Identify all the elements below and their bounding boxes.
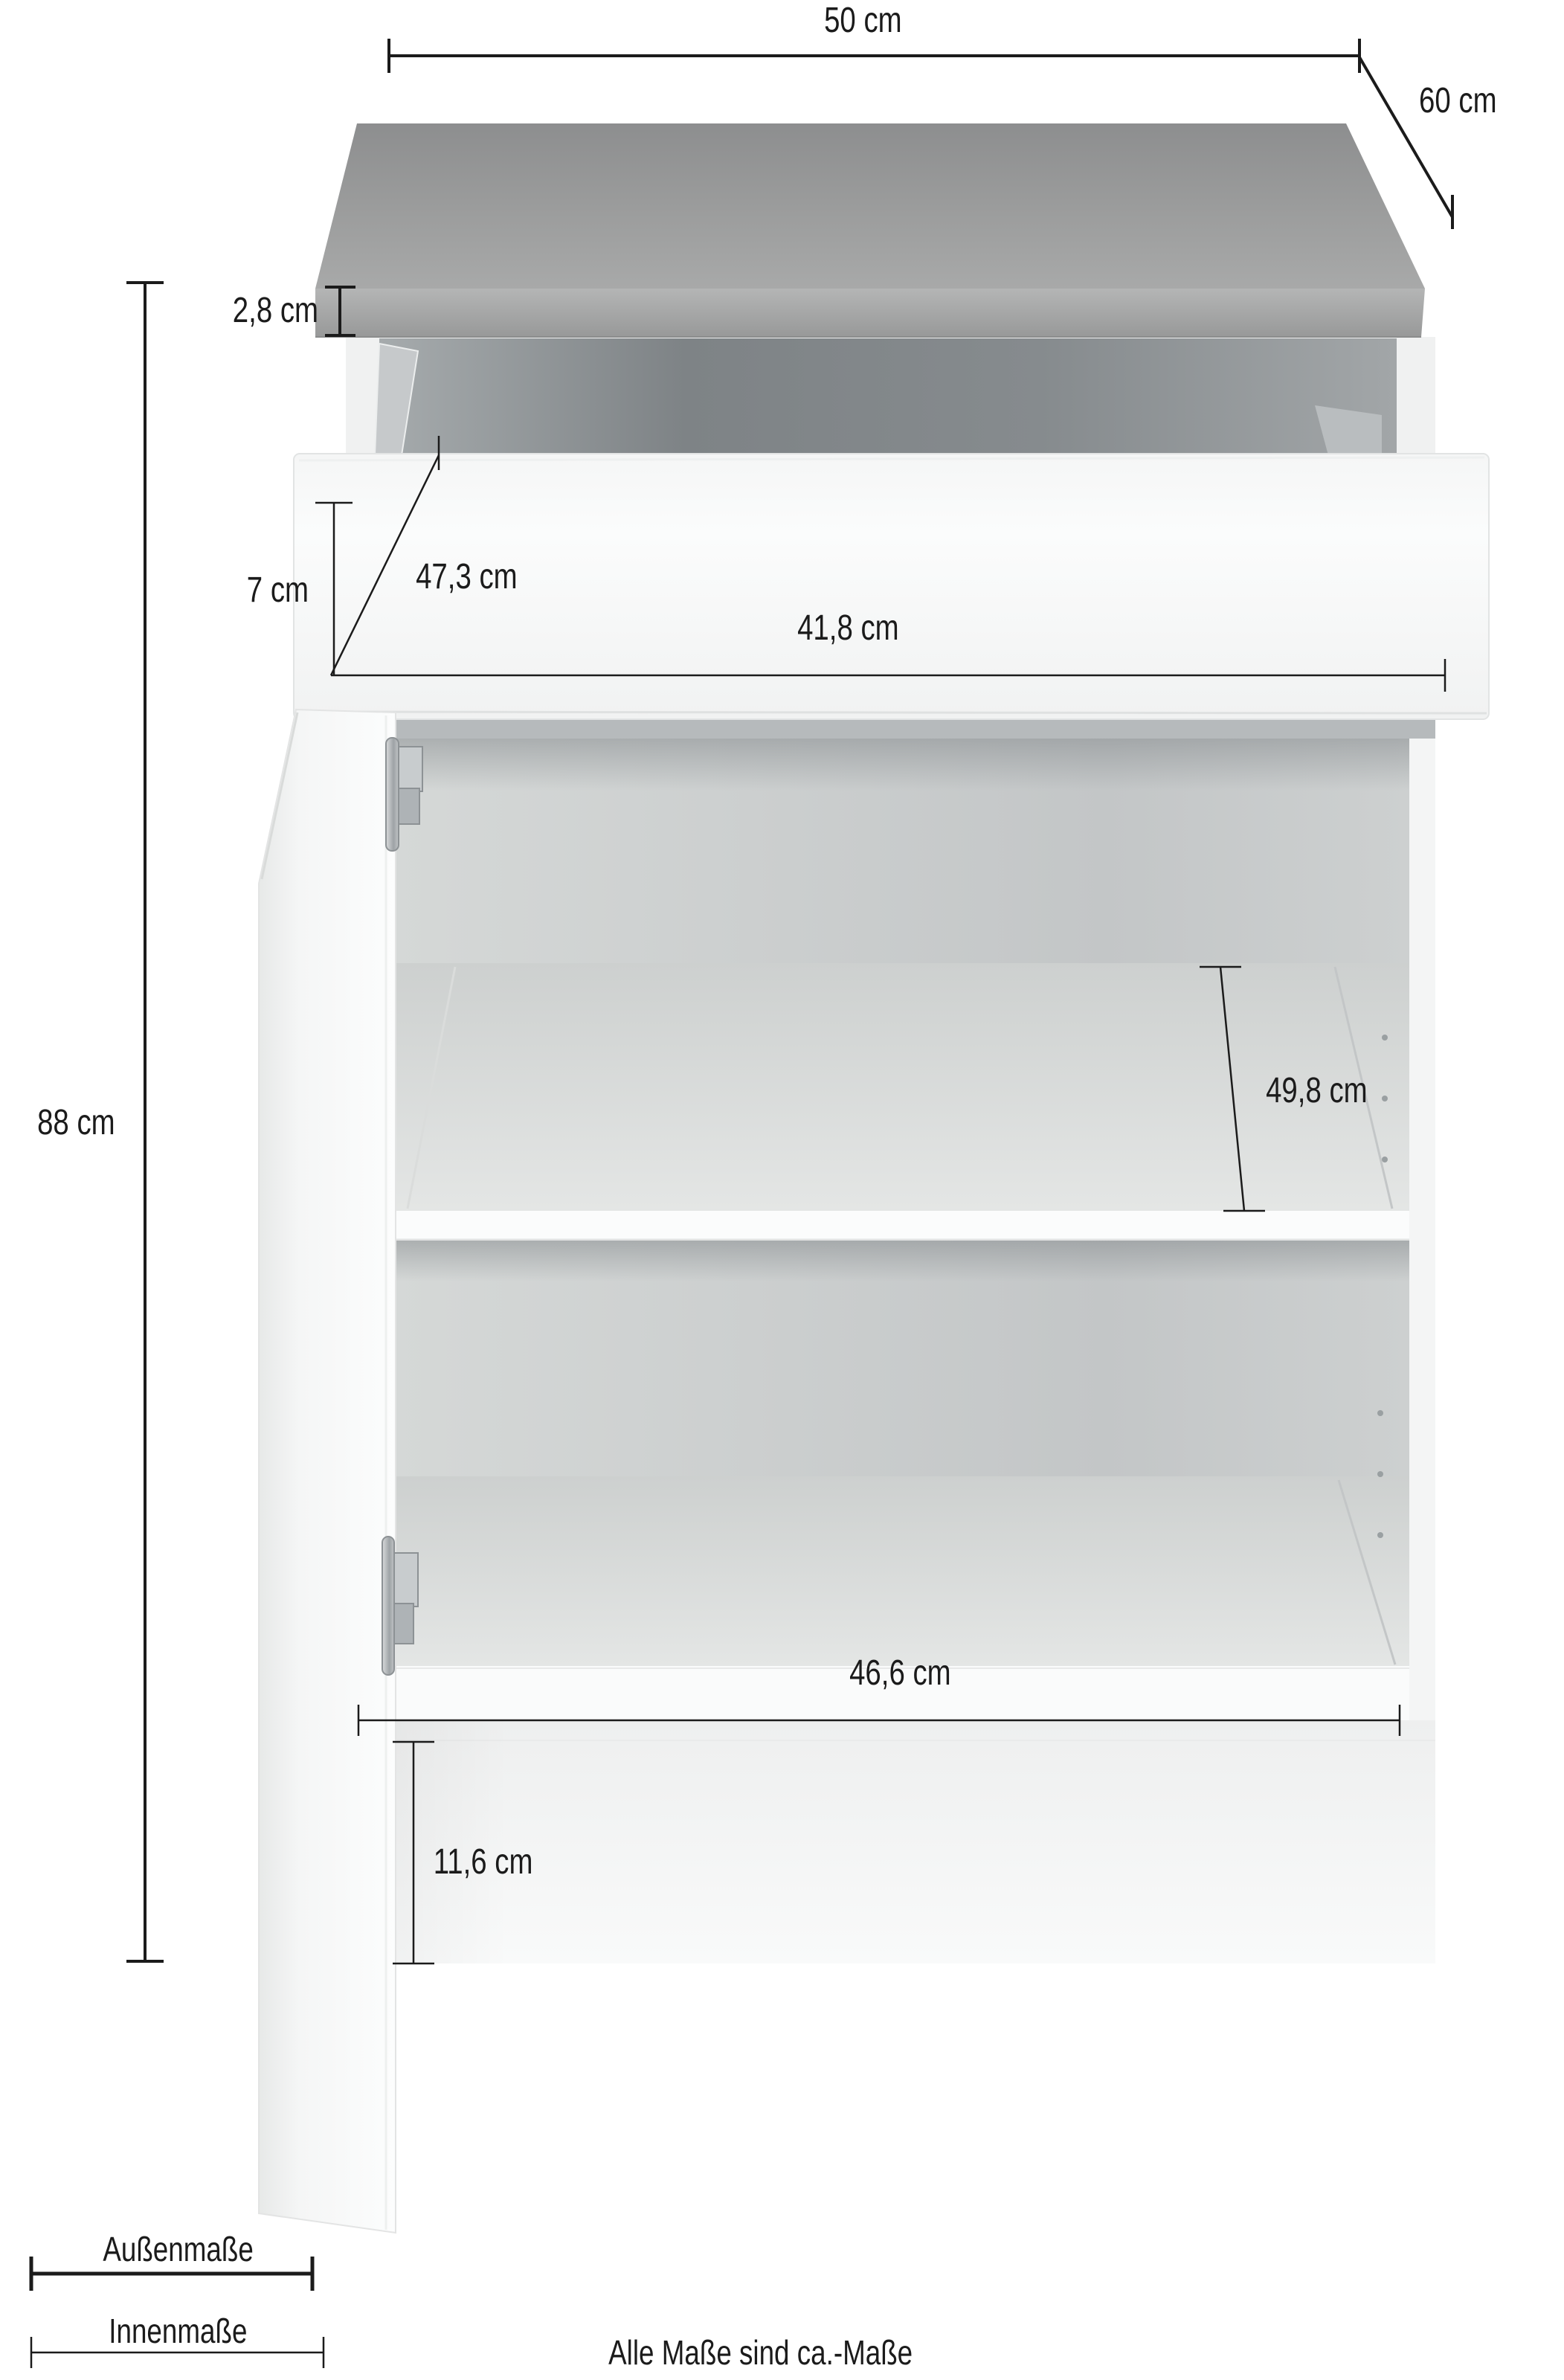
hinge-bottom-arm: [393, 1553, 418, 1606]
dim-label-total-height: 88 cm: [19, 1105, 134, 1141]
drawer-cavity: [379, 338, 1397, 455]
cabinet-illustration: [0, 0, 1564, 2380]
legend-label-inner: Innenmaße: [70, 2314, 286, 2348]
dim-label-inner-depth: 49,8 cm: [1253, 1073, 1380, 1109]
dim-label-drawer-inner-width: 41,8 cm: [773, 611, 922, 646]
drawer-bottom-shade: [297, 712, 1487, 713]
legend-label-outer: Außenmaße: [71, 2232, 286, 2266]
door-panel: [259, 710, 396, 2233]
worktop-surface: [315, 123, 1425, 289]
dim-label-worktop-thickness: 2,8 cm: [171, 293, 318, 329]
dim-label-drawer-front-height: 7 cm: [216, 573, 309, 608]
interior-lower-shadow: [394, 1241, 1409, 1281]
cabinet-door: [259, 710, 396, 2233]
hinge-top-arm: [397, 747, 422, 791]
dim-label-depth: 60 cm: [1419, 83, 1560, 119]
dim-label-top-width: 50 cm: [751, 3, 974, 39]
interior-upper-shadow: [394, 739, 1409, 791]
worktop: [315, 123, 1425, 337]
drawer-under-shadow: [346, 719, 1435, 739]
hinge-bottom-cup: [394, 1604, 413, 1644]
worktop-front-edge: [315, 289, 1425, 337]
dim-label-plinth-height: 11,6 cm: [420, 1844, 547, 1880]
dim-line-top-width: [389, 39, 1359, 73]
footer-note: Alle Maße sind ca.-Maße: [610, 2335, 912, 2370]
dim-label-drawer-inner-depth: 47,3 cm: [405, 559, 528, 595]
hinge-top-plate: [386, 738, 399, 851]
dim-label-inner-width: 46,6 cm: [837, 1656, 963, 1691]
hinge-bottom-plate: [382, 1537, 394, 1675]
hinge-top-cup: [399, 788, 419, 824]
dimension-diagram: 50 cm 60 cm 2,8 cm 7 cm 47,3 cm 41,8 cm …: [0, 0, 1564, 2380]
shelf-front-edge: [394, 1211, 1409, 1241]
interior-floor: [394, 1476, 1409, 1666]
